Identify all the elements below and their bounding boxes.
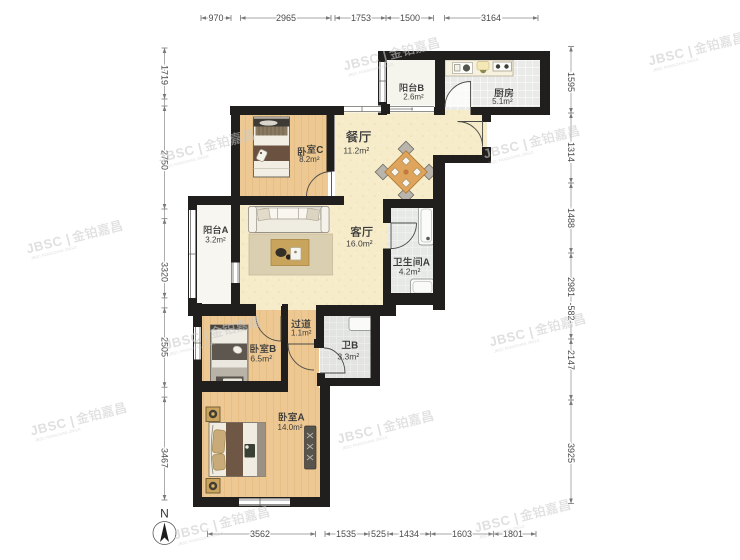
svg-text:6.5m²: 6.5m² bbox=[250, 354, 272, 364]
svg-text:1488: 1488 bbox=[566, 208, 576, 228]
svg-text:3.2m²: 3.2m² bbox=[205, 235, 226, 244]
svg-text:A: A bbox=[222, 225, 229, 235]
svg-text:3925: 3925 bbox=[566, 443, 576, 463]
svg-text:11.2m²: 11.2m² bbox=[343, 145, 369, 155]
svg-text:3320: 3320 bbox=[160, 262, 170, 282]
svg-text:1719: 1719 bbox=[160, 65, 170, 85]
svg-text:1753: 1753 bbox=[351, 13, 371, 23]
svg-text:525: 525 bbox=[371, 529, 386, 539]
svg-text:1595: 1595 bbox=[566, 72, 576, 92]
svg-text:B: B bbox=[417, 83, 424, 93]
svg-text:2147: 2147 bbox=[566, 350, 576, 370]
svg-text:A: A bbox=[298, 413, 305, 424]
svg-text:1603: 1603 bbox=[452, 529, 472, 539]
svg-text:5.1m²: 5.1m² bbox=[492, 97, 513, 106]
svg-text:A: A bbox=[423, 258, 430, 269]
svg-text:1.1m²: 1.1m² bbox=[291, 329, 312, 338]
svg-text:3562: 3562 bbox=[250, 529, 270, 539]
svg-text:8.2m²: 8.2m² bbox=[299, 155, 320, 164]
svg-text:16.0m²: 16.0m² bbox=[346, 239, 373, 249]
svg-text:1535: 1535 bbox=[336, 529, 356, 539]
svg-text:4.2m²: 4.2m² bbox=[399, 267, 421, 277]
svg-text:1500: 1500 bbox=[400, 13, 420, 23]
svg-text:14.0m²: 14.0m² bbox=[278, 423, 303, 432]
svg-text:B: B bbox=[351, 340, 358, 351]
svg-text:2.6m²: 2.6m² bbox=[403, 93, 424, 102]
svg-text:1314: 1314 bbox=[566, 142, 576, 162]
svg-text:1434: 1434 bbox=[399, 529, 419, 539]
svg-text:3467: 3467 bbox=[160, 448, 170, 468]
svg-text:2965: 2965 bbox=[276, 13, 296, 23]
svg-text:N: N bbox=[160, 507, 169, 521]
svg-text:2981: 2981 bbox=[566, 277, 576, 297]
svg-text:3164: 3164 bbox=[481, 13, 501, 23]
svg-text:970: 970 bbox=[208, 13, 223, 23]
svg-text:3.3m²: 3.3m² bbox=[337, 351, 359, 361]
